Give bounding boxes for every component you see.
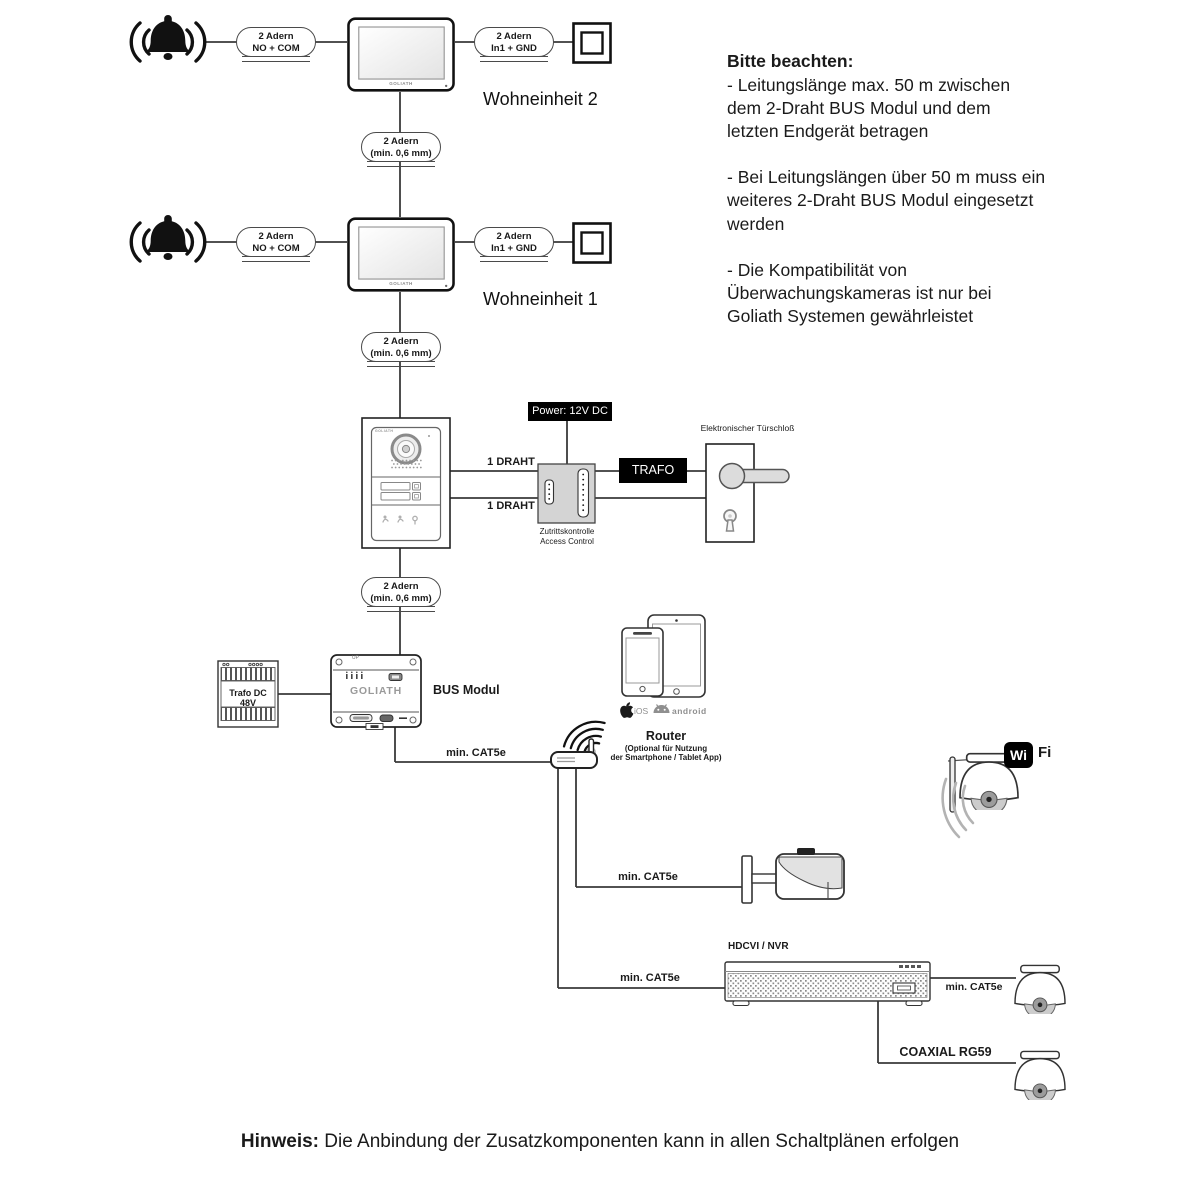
access-label-en: Access Control (540, 537, 594, 546)
lock-label: Elektronischer Türschloß (690, 423, 805, 433)
dome-camera-icon (1015, 1051, 1065, 1104)
cable-pill-riser-1: 2 Adern (min. 0,6 mm) (361, 332, 441, 362)
door-lock (706, 444, 789, 542)
cable-pill-button-2: 2 Adern In1 + GND (474, 27, 554, 57)
pushbutton-icon (574, 224, 611, 263)
android-label: android (672, 706, 707, 716)
ios-label: iOS (634, 706, 648, 716)
router-note-1: (Optional für Nutzung (601, 744, 731, 753)
nvr-label: HDCVI / NVR (728, 941, 789, 952)
power-label: Power: 12V DC (528, 402, 612, 421)
cable-pill-riser-2: 2 Adern (min. 0,6 mm) (361, 132, 441, 162)
pushbutton-icon (574, 24, 611, 63)
monitor-brand: GOLIATH (361, 281, 441, 286)
unit-title: Wohneinheit 1 (483, 289, 598, 310)
wifi-wi-badge: Wi (1004, 742, 1033, 768)
notes-paragraph: - Leitungslänge max. 50 m zwischen dem 2… (727, 74, 1182, 143)
access-control-module (538, 464, 595, 523)
access-label-de: Zutrittskontrolle (540, 527, 595, 536)
router-note-2: der Smartphone / Tablet App) (601, 753, 731, 762)
apple-icon (620, 702, 633, 718)
door-station-brand: GOLIATH (375, 429, 393, 433)
dome-camera-icon (1015, 965, 1065, 1018)
notes-paragraph: - Bei Leitungslängen über 50 m muss ein … (727, 166, 1182, 235)
bell-icon (131, 215, 205, 261)
bus-up-label: UP (352, 655, 359, 661)
din-trafo-label: Trafo DC 48V (221, 688, 275, 708)
router-icon (551, 722, 605, 768)
wiring-diagram: 2 Adern NO + COM 2 Adern In1 + GND GOLIA… (0, 0, 1200, 1200)
trafo-label: TRAFO (619, 458, 687, 483)
cable-pill-riser-door: 2 Adern (min. 0,6 mm) (361, 577, 441, 607)
cable-pill-bell-1: 2 Adern NO + COM (236, 227, 316, 257)
router-label: Router (616, 729, 716, 743)
nvr-usb-port (893, 983, 915, 993)
notes-block: Bitte beachten: - Leitungslänge max. 50 … (727, 50, 1182, 351)
wifi-waves-icon (564, 722, 605, 752)
door-station (362, 418, 450, 548)
monitor-brand: GOLIATH (361, 81, 441, 86)
footer-text: Die Anbindung der Zusatzkomponenten kann… (319, 1131, 959, 1152)
footer-note: Hinweis: Die Anbindung der Zusatzkompone… (0, 1131, 1200, 1153)
unit-title: Wohneinheit 2 (483, 89, 598, 110)
cable-label-cat5e-router: min. CAT5e (436, 747, 516, 759)
wifi-fi-label: Fi (1038, 744, 1051, 761)
smartphone-icon (622, 628, 663, 696)
wire-label-1draht-bottom: 1 DRAHT (466, 500, 556, 512)
footer-prefix: Hinweis: (241, 1131, 319, 1152)
notes-title: Bitte beachten: (727, 50, 1182, 73)
notes-paragraph: - Die Kompatibilität von Überwachungskam… (727, 259, 1182, 328)
bell-icon (131, 15, 205, 61)
cable-label-cat5e-dome: min. CAT5e (938, 981, 1010, 993)
bus-module-label: BUS Modul (433, 683, 500, 697)
nvr-icon (725, 962, 930, 1006)
access-control-label: ZutrittskontrolleAccess Control (524, 527, 610, 546)
cable-pill-bell-2: 2 Adern NO + COM (236, 27, 316, 57)
cable-pill-button-1: 2 Adern In1 + GND (474, 227, 554, 257)
android-icon (654, 705, 670, 714)
bullet-camera-icon (742, 848, 844, 903)
cable-label-coax: COAXIAL RG59 (888, 1045, 1003, 1059)
wire-label-1draht-top: 1 DRAHT (466, 456, 556, 468)
cable-label-cat5e-nvr: min. CAT5e (610, 972, 690, 984)
cable-label-cat5e-bullet: min. CAT5e (608, 871, 688, 883)
bus-brand: GOLIATH (341, 685, 411, 697)
